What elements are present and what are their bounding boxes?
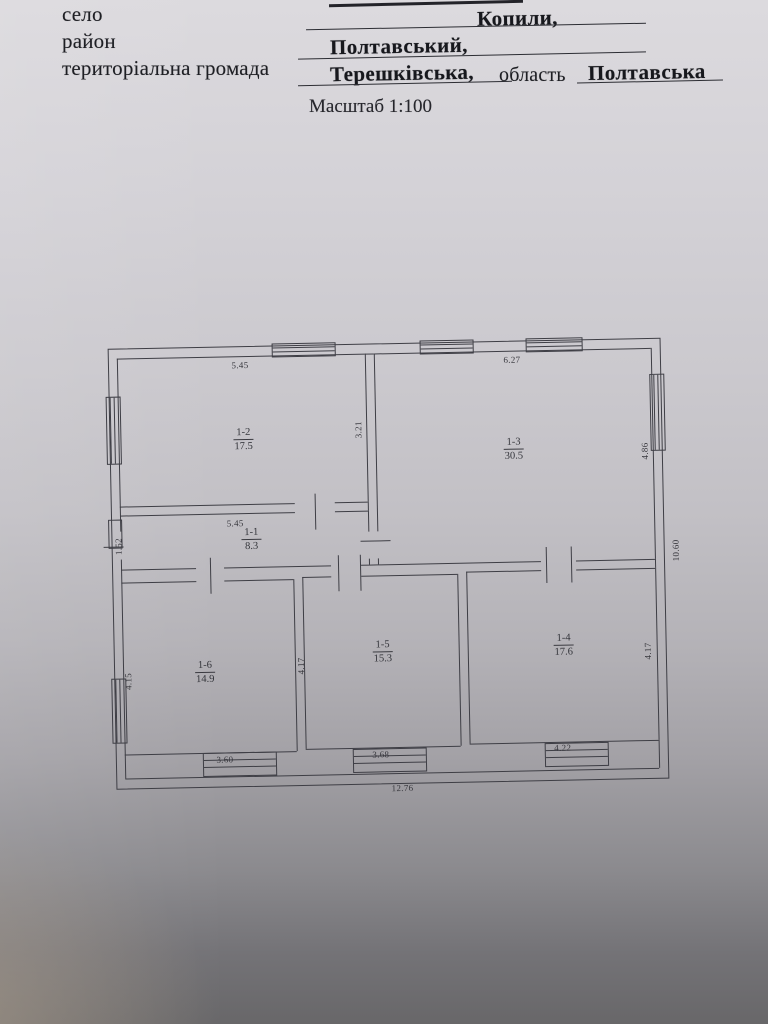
room-id: 1-6 [195, 660, 215, 673]
wall-line [120, 507, 121, 516]
dim-room-1-6-left: 4.15 [123, 673, 133, 690]
window-bottom-2 [353, 747, 427, 772]
room-label-1-4: 1-4 17.6 [553, 633, 574, 660]
field-label-district: район [62, 29, 116, 54]
window-bottom-1 [203, 751, 277, 776]
window-top-1 [272, 342, 336, 357]
dim-room-1-4-right: 4.17 [643, 642, 653, 659]
room-label-1-3: 1-3 30.5 [503, 436, 524, 463]
field-label-village: село [62, 2, 103, 27]
window-top-2 [420, 339, 474, 354]
floor-plan: 5.45 6.27 3.21 4.86 5.45 1.52 4.15 4.17 … [99, 328, 698, 800]
room-id: 1-2 [233, 427, 253, 440]
room-label-1-5: 1-5 15.3 [373, 639, 394, 666]
room-area: 8.3 [241, 540, 261, 553]
room-1-1-wall [361, 565, 369, 566]
dim-room-1-3-right: 4.86 [640, 442, 650, 459]
wall-line [655, 559, 656, 568]
room-id: 1-3 [503, 436, 523, 449]
room-label-1-6: 1-6 14.9 [195, 660, 216, 687]
field-label-oblast: область [499, 64, 566, 87]
window-top-3 [525, 337, 582, 352]
scale-note: Масштаб 1:100 [309, 96, 432, 118]
wall-line [369, 564, 378, 565]
dim-room-1-5-bottom: 3.68 [372, 749, 389, 759]
dim-room-1-1-left: 1.52 [113, 538, 123, 555]
room-area: 15.3 [373, 652, 393, 665]
wall-line [368, 502, 369, 511]
dim-room-1-2-right: 3.21 [353, 421, 363, 438]
room-1-1-wall [369, 559, 370, 565]
dim-total-height: 10.60 [671, 539, 681, 561]
room-1-1-wall [121, 560, 122, 570]
wall-line [365, 353, 374, 354]
window-left-1 [106, 397, 122, 465]
photographed-document: { "document": { "header": { "rows": [ { … [0, 0, 768, 1024]
room-label-1-1: 1-1 8.3 [241, 527, 262, 554]
dim-total-width: 12.76 [392, 783, 414, 793]
dim-room-1-3-top: 6.27 [503, 355, 520, 365]
dim-wall-1-6-1-5: 4.17 [296, 657, 306, 674]
field-label-community: територіальна громада [62, 56, 269, 81]
dim-room-1-4-bottom: 4.22 [554, 743, 571, 753]
room-area: 30.5 [504, 450, 524, 463]
room-id: 1-5 [373, 639, 393, 652]
window-right-1 [649, 374, 666, 451]
room-area: 14.9 [195, 673, 215, 686]
room-area: 17.6 [554, 646, 574, 659]
dim-room-1-2-top: 5.45 [231, 360, 248, 370]
room-id: 1-4 [553, 633, 573, 646]
dim-room-1-6-bottom: 3.60 [216, 754, 233, 764]
room-area: 17.5 [233, 440, 253, 453]
field-value-village: Копили, [477, 5, 558, 31]
room-label-1-2: 1-2 17.5 [233, 427, 254, 454]
room-id: 1-1 [241, 527, 261, 540]
underline-village [306, 23, 646, 31]
